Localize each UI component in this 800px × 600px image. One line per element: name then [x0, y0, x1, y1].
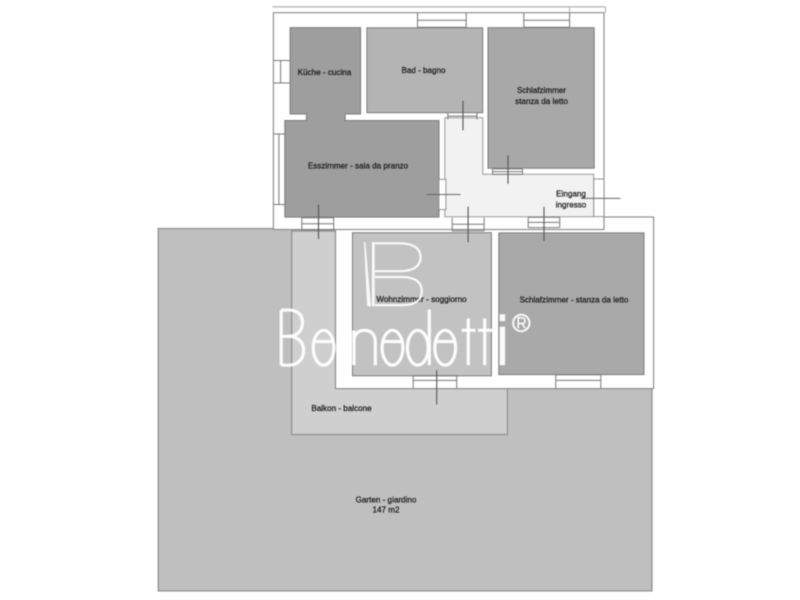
- svg-text:Schlafzimmer: Schlafzimmer: [517, 86, 566, 95]
- svg-text:Esszimmer - sala da pranzo: Esszimmer - sala da pranzo: [308, 161, 409, 170]
- svg-text:Schlafzimmer - stanza da letto: Schlafzimmer - stanza da letto: [520, 295, 629, 304]
- svg-text:Garten - giardino: Garten - giardino: [356, 495, 417, 504]
- svg-text:ingresso: ingresso: [556, 201, 587, 210]
- svg-text:Bad - bagno: Bad - bagno: [401, 66, 446, 75]
- svg-text:Balkon - balcone: Balkon - balcone: [311, 404, 372, 413]
- svg-text:stanza da letto: stanza da letto: [515, 97, 568, 106]
- svg-text:Küche - cucina: Küche - cucina: [298, 68, 352, 77]
- svg-text:Eingang: Eingang: [556, 189, 586, 198]
- svg-text:147 m2: 147 m2: [373, 505, 400, 514]
